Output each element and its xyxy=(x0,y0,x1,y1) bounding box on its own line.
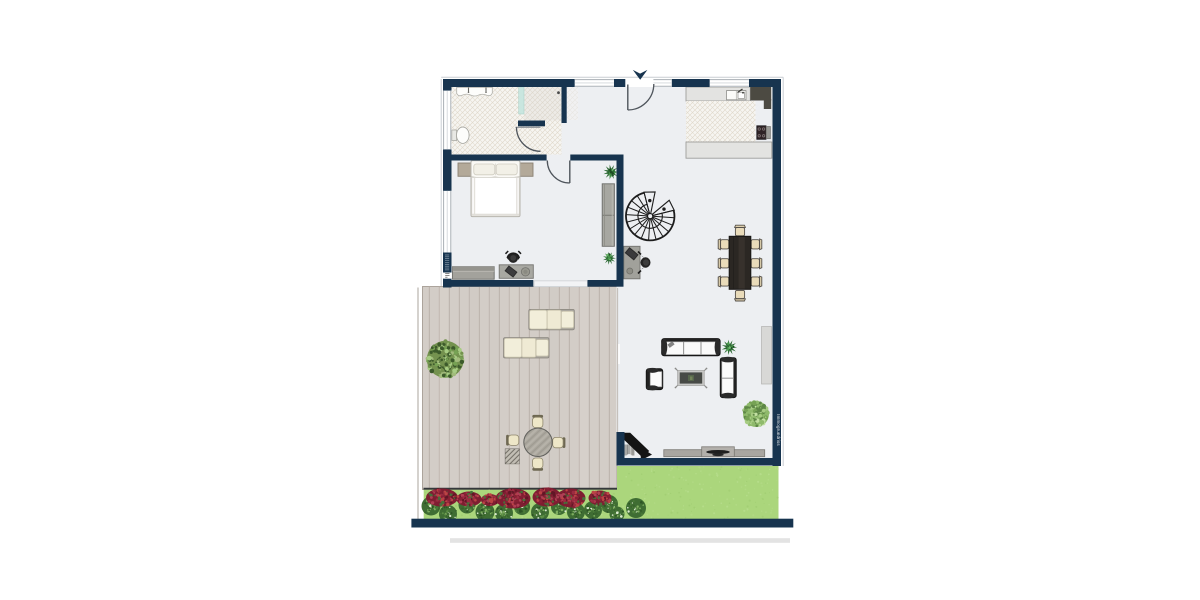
svg-text:Immogrundriss: Immogrundriss xyxy=(776,414,781,446)
